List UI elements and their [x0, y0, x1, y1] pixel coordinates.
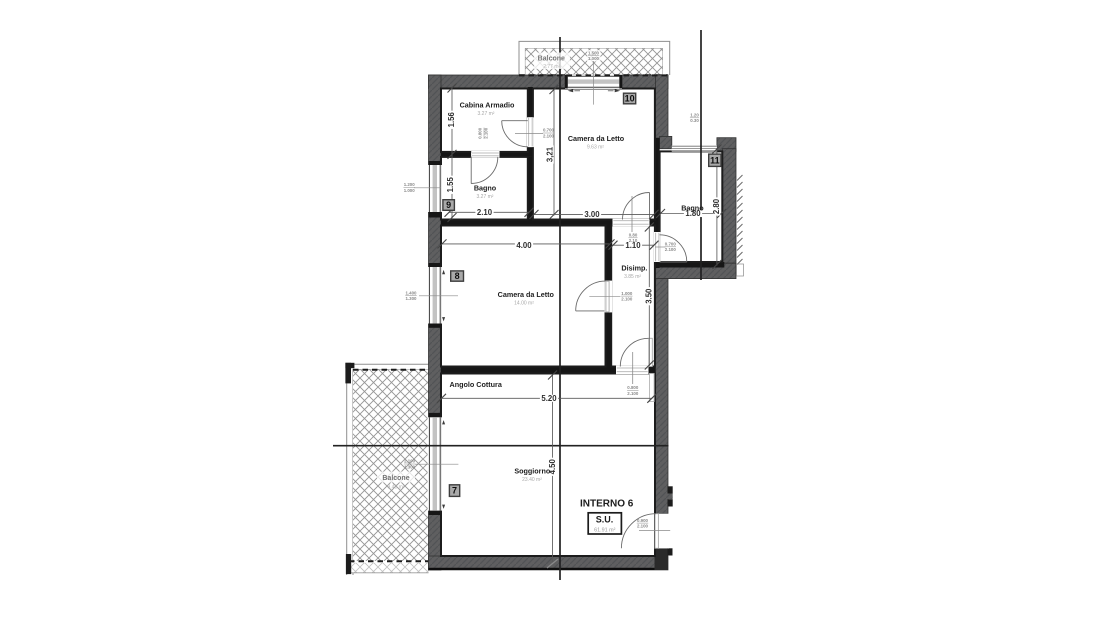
svg-text:1.20: 1.20	[690, 113, 699, 118]
svg-text:5.20: 5.20	[541, 394, 557, 403]
svg-text:Balcone: Balcone	[538, 56, 565, 63]
svg-text:3.27 m²: 3.27 m²	[477, 194, 494, 200]
svg-text:2.10: 2.10	[629, 238, 638, 243]
svg-text:3.00: 3.00	[584, 210, 600, 219]
svg-text:9.63 m²: 9.63 m²	[587, 144, 604, 150]
svg-text:2.100: 2.100	[543, 133, 555, 138]
svg-text:1.000: 1.000	[621, 291, 633, 296]
svg-text:Cabina Armadio: Cabina Armadio	[460, 100, 515, 109]
svg-text:2.100: 2.100	[404, 459, 416, 464]
svg-text:3,21: 3,21	[546, 146, 555, 162]
svg-text:Disimp.: Disimp.	[621, 263, 647, 272]
svg-text:Soggiorno: Soggiorno	[514, 466, 551, 475]
svg-text:1.56: 1.56	[447, 112, 456, 128]
svg-text:0.800: 0.800	[627, 385, 639, 390]
svg-text:Bagno: Bagno	[681, 204, 704, 213]
svg-text:1.000: 1.000	[588, 56, 600, 61]
svg-text:9.40 m²: 9.40 m²	[388, 485, 405, 491]
svg-text:1.300: 1.300	[406, 296, 418, 301]
svg-text:3.27 m²: 3.27 m²	[478, 111, 495, 117]
svg-text:23.40 m²: 23.40 m²	[522, 477, 542, 483]
svg-text:Camera da Letto: Camera da Letto	[568, 134, 625, 143]
svg-text:0.700: 0.700	[543, 128, 555, 133]
svg-text:1.55: 1.55	[446, 177, 455, 193]
svg-text:S.U.: S.U.	[596, 515, 614, 525]
svg-text:2.80: 2.80	[712, 198, 721, 214]
svg-text:Angolo Cottura: Angolo Cottura	[450, 380, 503, 389]
svg-text:Balcone: Balcone	[382, 475, 409, 482]
svg-text:0.30: 0.30	[690, 118, 699, 123]
svg-text:3.85 m²: 3.85 m²	[624, 274, 641, 280]
svg-text:2.77 m²: 2.77 m²	[543, 64, 560, 70]
svg-text:Camera da Letto: Camera da Letto	[498, 290, 555, 299]
svg-text:1.500: 1.500	[588, 50, 600, 55]
svg-text:0.80: 0.80	[629, 233, 638, 238]
svg-text:8: 8	[455, 271, 460, 281]
svg-text:0.700: 0.700	[665, 242, 677, 247]
svg-text:2.100: 2.100	[621, 297, 633, 302]
svg-text:11: 11	[710, 155, 720, 165]
svg-text:14.00 m²: 14.00 m²	[514, 301, 534, 307]
svg-text:3.50: 3.50	[644, 288, 653, 304]
svg-text:INTERNO 6: INTERNO 6	[580, 498, 634, 509]
svg-text:9: 9	[446, 200, 451, 210]
svg-text:1.300: 1.300	[404, 464, 416, 469]
svg-text:0.900: 0.900	[637, 518, 649, 523]
svg-text:7: 7	[452, 486, 457, 496]
svg-text:2.100: 2.100	[665, 247, 677, 252]
svg-text:2.100: 2.100	[627, 391, 639, 396]
svg-text:10: 10	[625, 94, 635, 104]
svg-text:0.800: 0.800	[478, 127, 483, 139]
svg-text:2.10: 2.10	[477, 208, 493, 217]
svg-text:Bagno: Bagno	[474, 184, 497, 193]
svg-text:1.200: 1.200	[404, 182, 416, 187]
svg-text:1.000: 1.000	[404, 188, 416, 193]
svg-text:4.00: 4.00	[516, 241, 532, 250]
svg-text:2.100: 2.100	[637, 524, 649, 529]
svg-text:61.91 m²: 61.91 m²	[594, 527, 615, 533]
svg-text:1.400: 1.400	[406, 290, 418, 295]
